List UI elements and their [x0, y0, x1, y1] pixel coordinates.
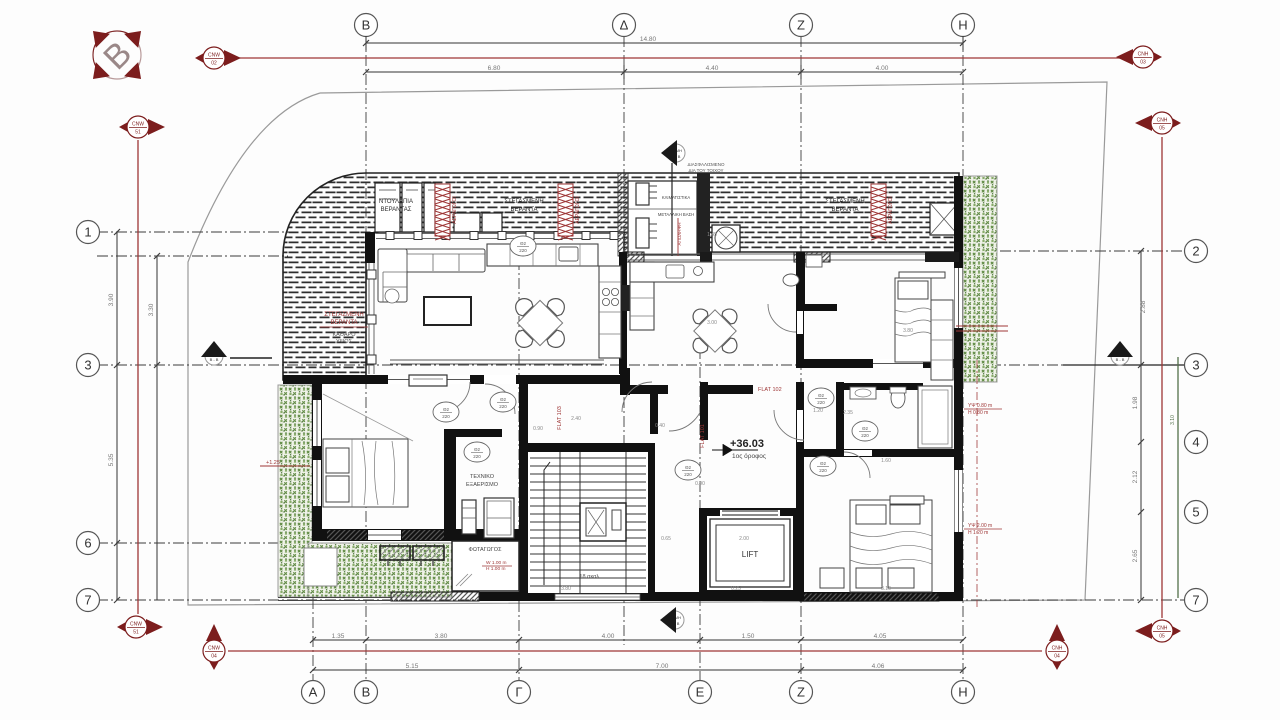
svg-text:18 σκαλ.: 18 σκαλ. [579, 574, 601, 580]
svg-text:Δ: Δ [620, 18, 629, 33]
svg-text:ΜΕΤΑΛΛΙΚΗ ΒΑΣΗ: ΜΕΤΑΛΛΙΚΗ ΒΑΣΗ [658, 212, 694, 217]
svg-text:51: 51 [135, 130, 141, 136]
svg-text:220: 220 [861, 433, 869, 438]
svg-text:FLAT 103: FLAT 103 [557, 406, 563, 430]
svg-text:Γ: Γ [515, 685, 522, 700]
svg-text:E: E [696, 685, 705, 700]
svg-text:0.25: 0.25 [731, 586, 741, 592]
svg-text:2.65: 2.65 [1132, 549, 1139, 562]
svg-text:A: A [309, 685, 318, 700]
svg-text:5.35: 5.35 [108, 453, 115, 466]
svg-text:Η 0.80 m: Η 0.80 m [968, 410, 988, 416]
svg-text:4.00: 4.00 [876, 65, 889, 72]
svg-text:ΚΛΙΜΑΤΙΣΤΙΚΑ: ΚΛΙΜΑΤΙΣΤΙΚΑ [662, 195, 691, 200]
svg-text:Θ2: Θ2 [820, 461, 827, 466]
svg-text:CNW: CNW [130, 622, 142, 628]
svg-text:0.90: 0.90 [533, 426, 543, 432]
svg-text:Θ2: Θ2 [500, 397, 507, 402]
svg-text:CNW: CNW [208, 53, 220, 59]
svg-text:3.10: 3.10 [1170, 415, 1176, 425]
svg-text:2: 2 [1192, 244, 1199, 259]
svg-text:ΒΕΡΑΝΤΑ: ΒΕΡΑΝΤΑ [330, 320, 357, 326]
svg-text:Θ2: Θ2 [818, 393, 825, 398]
svg-text:6.80: 6.80 [488, 65, 501, 72]
svg-text:ΔΙΑΣΦΑΛΙΣΜΕΝΟ: ΔΙΑΣΦΑΛΙΣΜΕΝΟ [687, 162, 725, 167]
svg-text:2.35: 2.35 [843, 410, 853, 416]
svg-text:ΝΤΟΥΛΑΠΙΑ: ΝΤΟΥΛΑΠΙΑ [379, 199, 413, 205]
svg-text:3: 3 [1192, 358, 1199, 373]
svg-text:H: H [958, 685, 967, 700]
svg-text:2.40: 2.40 [571, 416, 581, 422]
svg-text:Η 1.20 m: Η 1.20 m [968, 530, 988, 536]
svg-text:B: B [362, 18, 371, 33]
svg-text:03: 03 [1140, 60, 1146, 66]
svg-text:ΒΕΡΑΝΤΑΣ: ΒΕΡΑΝΤΑΣ [381, 207, 412, 213]
svg-text:ΣΤΕΓΑΣΜΕΝΗ: ΣΤΕΓΑΣΜΕΝΗ [825, 199, 865, 205]
svg-text:3.80: 3.80 [561, 586, 571, 592]
svg-text:ΦΩΤΑΓΩΓΟΣ: ΦΩΤΑΓΩΓΟΣ [469, 547, 503, 553]
svg-text:2.00: 2.00 [739, 536, 749, 542]
svg-text:1.60: 1.60 [881, 458, 891, 464]
svg-text:Z: Z [797, 18, 805, 33]
svg-text:+36.03: +36.03 [730, 438, 764, 450]
svg-text:ΑΕΡΑΓΩΓΟΙ: ΑΕΡΑΓΩΓΟΙ [575, 196, 581, 224]
svg-text:5: 5 [1192, 505, 1199, 520]
svg-text:3.80: 3.80 [903, 328, 913, 334]
svg-text:ΕΞΑΕΡΙΣΜΟ: ΕΞΑΕΡΙΣΜΟ [466, 482, 499, 488]
svg-text:0.65: 0.65 [661, 536, 671, 542]
svg-text:CNW: CNW [208, 646, 220, 652]
svg-text:4.06: 4.06 [872, 663, 885, 670]
svg-text:ΣΤΕΓΑΣΜΕΝΗ: ΣΤΕΓΑΣΜΕΝΗ [504, 199, 544, 205]
svg-text:0.40: 0.40 [655, 423, 665, 429]
svg-text:ΥΨ 0.80 m: ΥΨ 0.80 m [968, 403, 992, 409]
svg-text:7.00: 7.00 [656, 663, 669, 670]
svg-text:14.80: 14.80 [640, 36, 657, 43]
svg-text:0.90: 0.90 [695, 481, 705, 487]
svg-text:1.45: 1.45 [707, 232, 717, 238]
svg-text:1.50: 1.50 [742, 633, 755, 640]
svg-text:4.05: 4.05 [874, 633, 887, 640]
svg-text:Θ2: Θ2 [443, 407, 450, 412]
svg-text:ΑΕΡΑΓΩΓΟΙ: ΑΕΡΑΓΩΓΟΙ [452, 196, 458, 224]
svg-text:ΥΨΟΣ: ΥΨΟΣ [336, 339, 353, 345]
svg-text:1.20: 1.20 [813, 408, 823, 414]
svg-text:FLAT 102: FLAT 102 [758, 387, 782, 393]
svg-text:3.30: 3.30 [148, 303, 155, 316]
svg-text:3.90: 3.90 [108, 293, 115, 306]
svg-text:LIFT: LIFT [742, 550, 759, 559]
svg-text:7: 7 [84, 593, 91, 608]
svg-text:3.10: 3.10 [881, 586, 891, 592]
svg-text:W 1.00 m: W 1.00 m [486, 560, 507, 566]
svg-text:51: 51 [133, 630, 139, 636]
svg-text:ΣΤΕΓΑΣΜΕΝΗ: ΣΤΕΓΑΣΜΕΝΗ [324, 312, 364, 318]
svg-text:4.00: 4.00 [602, 633, 615, 640]
svg-text:+1.25: +1.25 [266, 460, 280, 466]
svg-text:2.88: 2.88 [1140, 300, 1147, 313]
svg-text:FLAT 101: FLAT 101 [700, 424, 706, 448]
svg-text:220: 220 [442, 414, 450, 419]
svg-text:ΒΕΡΑΝΤΑ: ΒΕΡΑΝΤΑ [831, 207, 858, 213]
svg-text:3.00: 3.00 [707, 320, 717, 326]
svg-text:ΔΙΑ ΤΟΥ ΤΟΙΧΟΥ: ΔΙΑ ΤΟΥ ΤΟΙΧΟΥ [688, 168, 723, 173]
svg-text:CNW: CNW [132, 122, 144, 128]
svg-text:1.35: 1.35 [332, 633, 345, 640]
svg-text:6: 6 [84, 536, 91, 551]
svg-text:H 1.00 m: H 1.00 m [486, 566, 505, 572]
svg-text:220: 220 [519, 248, 527, 253]
svg-text:B - B: B - B [210, 357, 219, 362]
svg-text:2.12: 2.12 [1132, 470, 1139, 483]
svg-text:220: 220 [473, 454, 481, 459]
svg-text:220: 220 [819, 468, 827, 473]
svg-text:1: 1 [84, 225, 91, 240]
svg-text:B - B: B - B [1116, 357, 1125, 362]
svg-text:CNH: CNH [1157, 626, 1168, 632]
svg-text:220: 220 [684, 472, 692, 477]
svg-text:ΒΕΡΑΝΤΑ: ΒΕΡΑΝΤΑ [510, 207, 537, 213]
svg-text:04: 04 [211, 654, 217, 660]
svg-text:4.40: 4.40 [706, 65, 719, 72]
svg-text:7: 7 [1192, 593, 1199, 608]
svg-text:Z: Z [797, 685, 805, 700]
svg-text:CNH: CNH [1157, 118, 1168, 124]
svg-text:1.98: 1.98 [1132, 396, 1139, 409]
svg-text:CNH: CNH [1052, 646, 1063, 652]
svg-text:3: 3 [84, 358, 91, 373]
svg-text:Θ2: Θ2 [685, 465, 692, 470]
svg-text:H: H [958, 18, 967, 33]
svg-text:CNH: CNH [1138, 52, 1149, 58]
svg-text:B: B [362, 685, 371, 700]
svg-text:5.15: 5.15 [406, 663, 419, 670]
svg-text:3.80: 3.80 [435, 633, 448, 640]
svg-text:02: 02 [211, 61, 217, 67]
svg-text:04: 04 [1054, 654, 1060, 660]
svg-text:05: 05 [1159, 126, 1165, 132]
svg-text:220: 220 [499, 404, 507, 409]
svg-text:ΤΕΧΝΙΚΟ: ΤΕΧΝΙΚΟ [470, 474, 495, 480]
svg-text:220: 220 [817, 400, 825, 405]
svg-text:Θ2: Θ2 [520, 241, 527, 246]
svg-text:ΑΕΡΑΓΩΓΟΙ: ΑΕΡΑΓΩΓΟΙ [888, 196, 894, 224]
svg-text:4: 4 [1192, 435, 1199, 450]
svg-text:ΥΨ 2.00 m: ΥΨ 2.00 m [968, 523, 992, 529]
svg-text:Θ2: Θ2 [862, 426, 869, 431]
svg-text:ΚΑΘΑΡΟ: ΚΑΘΑΡΟ [332, 332, 356, 338]
svg-text:Θ2: Θ2 [474, 447, 481, 452]
svg-text:1ος όροφος: 1ος όροφος [732, 452, 766, 460]
svg-text:05: 05 [1159, 634, 1165, 640]
